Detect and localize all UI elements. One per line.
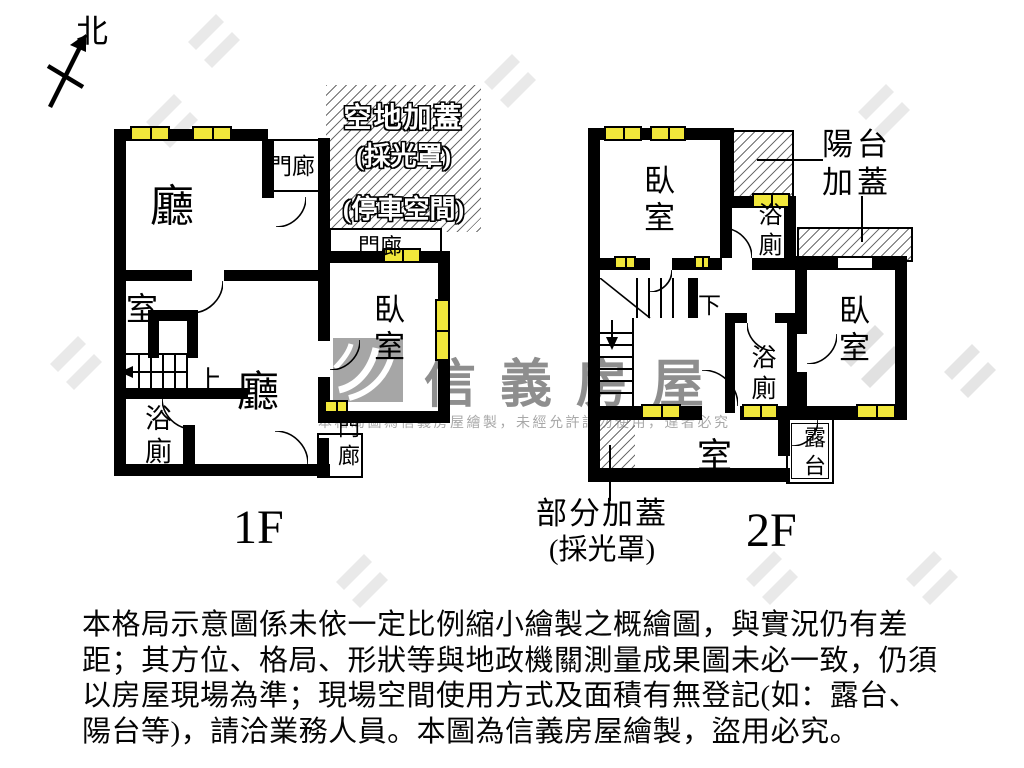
disclaimer-line: 本格局示意圖係未依一定比例縮小繪製之概繪圖，與實況仍有差 <box>82 608 962 644</box>
door-arc <box>330 340 360 370</box>
disclaimer-line: 陽台等)，請洽業務人員。本圖為信義房屋繪製，盜用必究。 <box>82 715 962 751</box>
watermark-tile-icon <box>900 545 960 605</box>
wall <box>895 256 907 420</box>
stairs-2f <box>632 318 634 406</box>
partial-cover-line1: 部分加蓋 <box>536 496 668 532</box>
door-arc <box>276 197 306 227</box>
stairs-up-arrow-icon <box>120 366 133 378</box>
watermark-tile-icon <box>182 8 242 68</box>
wall <box>588 468 790 482</box>
leader-line <box>757 159 823 161</box>
stairs-2f <box>600 332 632 334</box>
stairs-2f <box>600 392 632 394</box>
stairs-2f <box>636 278 638 318</box>
balcony-cover-label: 陽台 加蓋 <box>822 126 892 202</box>
partial-cover-label: 部分加蓋 (採光罩) <box>536 496 668 568</box>
balcony-cover-line1: 陽台 <box>822 126 892 164</box>
room-label-porch-mid: 門廊 <box>358 229 402 261</box>
wall <box>725 313 747 323</box>
disclaimer-line: 距；其方位、格局、形狀等與地政機關測量成果圖未必一致，仍須 <box>82 644 962 680</box>
window <box>604 126 642 141</box>
stairs-1f <box>186 355 188 388</box>
leader-line <box>861 196 863 242</box>
stairs-2f <box>600 356 632 358</box>
window <box>694 256 710 269</box>
wall <box>318 263 330 341</box>
wall-opening <box>838 256 872 270</box>
compass-arrow-icon <box>28 20 103 120</box>
wall <box>688 278 698 318</box>
open-cover-line2: (採光罩) <box>326 136 481 173</box>
floor-label-2f: 2F <box>746 503 797 558</box>
partial-cover-line2: (採光罩) <box>536 532 668 568</box>
stairs-2f <box>600 380 632 382</box>
stairs-direction-line <box>611 320 613 337</box>
watermark-tile-icon <box>938 338 998 398</box>
disclaimer-text: 本格局示意圖係未依一定比例縮小繪製之概繪圖，與實況仍有差 距；其方位、格局、形狀… <box>82 608 962 750</box>
room-label-small-room-1f: 室 <box>126 284 158 330</box>
window <box>856 404 896 419</box>
room-label-bathroom-mid-2f: 浴廁 <box>743 344 779 406</box>
stairs-up-label: 上 <box>196 360 222 397</box>
stairs-direction-line <box>130 371 186 373</box>
wall <box>224 270 322 281</box>
room-label-terrace: 露台 <box>797 426 829 482</box>
door-arc <box>275 431 308 464</box>
open-cover-line3: (停車空間) <box>326 189 481 226</box>
room-label-porch-bottom: 門廊 <box>331 416 363 472</box>
stairs-2f <box>672 278 674 318</box>
disclaimer-line: 以房屋現場為準；現場空間使用方式及面積有無登記(如：露台、 <box>82 679 962 715</box>
wall <box>183 425 195 465</box>
room-label-bedroom-right-2f: 臥室 <box>829 294 874 368</box>
room-label-bathroom-top-2f: 浴廁 <box>750 202 785 262</box>
room-label-living-main: 廳 <box>237 358 279 419</box>
stairs-2f <box>600 368 632 370</box>
window <box>192 126 232 141</box>
window <box>324 400 348 413</box>
window <box>435 299 450 361</box>
watermark-tile-icon <box>330 548 390 608</box>
window <box>641 404 681 419</box>
open-cover-label: 空地加蓋 (採光罩) (停車空間) <box>326 96 481 226</box>
room-label-bathroom-1f: 浴廁 <box>137 404 176 470</box>
leader-line <box>609 445 611 501</box>
wall <box>795 372 807 408</box>
floor-label-1f: 1F <box>233 500 284 555</box>
room-label-bedroom-1f: 臥室 <box>364 293 409 367</box>
window <box>742 404 778 419</box>
wall <box>775 313 797 323</box>
wall <box>778 418 790 456</box>
wall <box>114 129 126 476</box>
open-cover-line1: 空地加蓋 <box>326 96 481 136</box>
stairs-down-arrow-icon <box>606 337 618 350</box>
wall <box>795 270 807 334</box>
door-arc <box>191 281 223 313</box>
stairs-diagonal <box>600 278 652 320</box>
wall <box>114 270 192 281</box>
floorplan-page: 北 信義房屋 本格局圖為信義房屋繪製，未經允許請勿使用，違者必究 空地加蓋 (採… <box>0 0 1024 768</box>
wall <box>317 438 329 476</box>
balcony-cover-hatch-top <box>732 130 794 200</box>
room-label-room-bottom-2f: 室 <box>697 428 732 479</box>
window <box>650 126 686 141</box>
door-arc <box>702 370 738 406</box>
stairs-down-label: 下 <box>698 286 721 320</box>
window <box>614 256 636 269</box>
balcony-cover-line2: 加蓋 <box>822 164 892 202</box>
room-label-living-top: 廳 <box>150 170 194 234</box>
room-label-porch-top: 門廊 <box>269 147 315 181</box>
door-arc <box>650 270 672 292</box>
wall <box>588 128 600 480</box>
watermark-tile-icon <box>44 330 104 390</box>
door-arc <box>722 228 752 258</box>
room-label-bedroom-left-2f: 臥室 <box>634 164 679 238</box>
window <box>130 126 170 141</box>
watermark-tile-icon <box>478 48 538 108</box>
